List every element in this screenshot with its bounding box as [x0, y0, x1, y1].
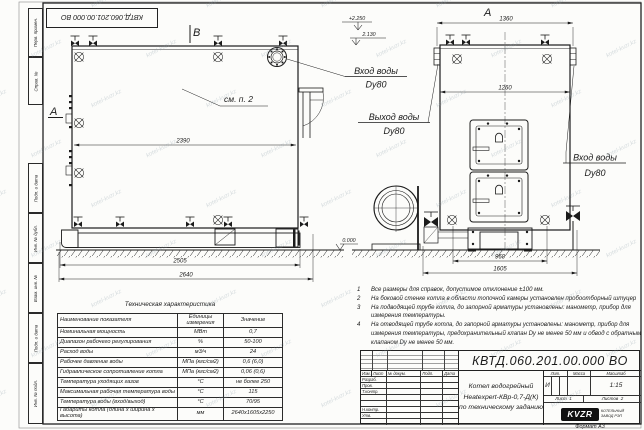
product-name-line: по техническому заданию — [459, 403, 543, 414]
role-label: Пров. — [361, 383, 387, 388]
signature-grid: Изм. Лист № докум. Подп. Дата Разраб. Пр… — [361, 371, 458, 425]
param-units: МПа (кгс/см2) — [178, 368, 224, 378]
col-ndokum: № докум. — [387, 371, 422, 376]
param-value: 0,06 (0,6) — [224, 368, 283, 378]
skid — [62, 229, 301, 248]
format-note: Формат А3 — [540, 424, 640, 430]
param-units: мм — [178, 408, 224, 421]
inlet-top-label: Вход воды — [354, 66, 398, 76]
margin-box-sprav: Справ. № — [28, 57, 43, 105]
tech-header-units: Единицы измерения — [178, 314, 224, 328]
table-row: Гидравлическое сопротивление котлаМПа (к… — [58, 368, 283, 378]
dim-skid-length: 2505 — [172, 259, 187, 265]
elevation-zero — [336, 244, 358, 250]
furnace-door — [470, 120, 528, 170]
param-name: Номинальная мощность — [58, 328, 178, 338]
tech-header-value: Значение — [224, 314, 283, 328]
margin-box-inv-podl: Инв. № подл. — [28, 363, 43, 424]
dim-body-length: 2390 — [175, 139, 190, 145]
lifting-lug-icon — [540, 215, 549, 224]
elevation-mid — [350, 38, 386, 45]
drain-valve-icon — [74, 217, 83, 227]
elevation-top — [342, 22, 372, 30]
param-units: МПа (кгс/см2) — [178, 358, 224, 368]
margin-label: Взам. инв. № — [33, 274, 38, 301]
see-note-label: см. п. 2 — [224, 94, 253, 104]
col-izm: Изм. — [361, 371, 372, 376]
right-valve — [566, 206, 580, 250]
sheet-value: 1 — [569, 396, 572, 401]
elevation-zero-value: 0.000 — [342, 238, 355, 244]
dim-overall-width: 1605 — [493, 267, 507, 273]
param-value: 2640х1605х2250 — [224, 408, 283, 421]
sheet-row: Лист 1 Листов 2 — [544, 396, 641, 403]
param-units: % — [178, 338, 224, 348]
signature-row — [361, 419, 458, 425]
elevation-top-value: +2.250 — [349, 16, 365, 22]
inlet-flange — [268, 48, 287, 67]
drain-valve-icon — [116, 217, 125, 227]
note-item: 4На отводящей трубе котла, до запорной а… — [357, 321, 642, 347]
param-name: Расход воды — [58, 348, 178, 358]
role-label: Разраб. — [361, 377, 387, 382]
lifting-lug-icon — [74, 52, 83, 61]
note-item: 3На подводящей трубе котла, до запорной … — [357, 304, 642, 322]
blower-fan — [372, 186, 468, 250]
sheets-cell: Листов 2 — [584, 396, 641, 402]
dim-front-body-width: 1260 — [498, 86, 512, 92]
air-valve-icon — [541, 35, 550, 45]
margin-label: Подп. и дата — [33, 324, 38, 352]
inlet-right-label: Вход воды — [573, 153, 617, 163]
section-marker-b: B — [193, 27, 200, 39]
margin-box-vzam-inv: Взам. инв. № — [28, 263, 43, 313]
role-label: Утв. — [361, 413, 387, 418]
margin-label: Инв. № подл. — [33, 380, 38, 407]
pipe-labels: Вход воды Dy80 Выход воды Dy80 Вход воды… — [287, 59, 626, 178]
dim-base-width: 960 — [495, 255, 506, 261]
product-name: Котел водогрейный Heatexpert-КВр-0,7-Д(К… — [458, 371, 544, 425]
col-data: Дата — [443, 371, 458, 376]
drain-valve-icon — [186, 217, 195, 227]
mass-header: Масса — [568, 371, 591, 376]
note-text: На отводящей трубе котла, до запорной ар… — [371, 321, 642, 347]
param-units: МВт — [178, 328, 224, 338]
lifting-lug-icon — [213, 215, 222, 224]
sheet-cell: Лист 1 — [544, 396, 584, 402]
col-podp: Подп. — [421, 371, 443, 376]
param-units: °С — [178, 398, 224, 408]
param-value: 0,6 (6,0) — [224, 358, 283, 368]
pedestal — [468, 228, 532, 252]
lifting-lug-icon — [542, 54, 551, 63]
rotated-doc-number-stamp: КВТД.060.201.00.000 ВО — [46, 8, 158, 28]
param-units: °С — [178, 378, 224, 388]
lit-header: Лит. — [544, 371, 568, 376]
air-valve-icon — [89, 36, 98, 46]
note-number: 1 — [357, 286, 371, 295]
doc-number: КВТД.060.201.00.000 ВО — [458, 351, 641, 371]
margin-box-inv-dubl: Инв. № дубл. — [28, 213, 43, 263]
note-number: 4 — [357, 321, 371, 347]
air-valve-icon — [71, 36, 80, 46]
sheet-label: Лист — [555, 396, 567, 401]
table-row: Температура уходящих газов°Сне более 250 — [58, 378, 283, 388]
note-item: 2На боковой стенке котла в области топоч… — [357, 295, 642, 304]
revision-grid — [361, 351, 458, 371]
scale-header: Масштаб — [591, 371, 641, 376]
mass-value — [568, 377, 591, 395]
lifting-lug-icon — [213, 52, 222, 61]
lit-mass-scale-values: И 1:15 — [544, 377, 641, 396]
tech-characteristics: Техническая характеристика Наименование … — [57, 301, 283, 421]
role-label — [361, 419, 387, 425]
logo-caption: КОТЕЛЬНЫЙ ЗАВОД РЭП — [601, 409, 624, 418]
outlet-label: Выход воды — [369, 112, 420, 122]
air-valve-icon — [279, 36, 288, 46]
note-item: 1Все размеры для справок, допустимое отк… — [357, 286, 642, 295]
role-label — [361, 395, 387, 400]
param-name: Диапазон рабочего регулирования — [58, 338, 178, 348]
margin-box-perv-primen: Перв. примен. — [28, 8, 43, 57]
param-value: 115 — [224, 388, 283, 398]
param-name: Габариты котла (длина х ширина х высота) — [58, 408, 178, 421]
param-name: Рабочее давление воды — [58, 358, 178, 368]
col-list: Лист — [372, 371, 387, 376]
drain-valve-icon — [224, 217, 233, 227]
note-number: 2 — [357, 295, 371, 304]
param-name: Температура уходящих газов — [58, 378, 178, 388]
dim-front-overall-width: 1360 — [499, 17, 513, 23]
view-marker-a-side: A — [49, 106, 57, 118]
inlet-right-dn: Dy80 — [584, 168, 605, 178]
elevation-mid-value: 2.130 — [361, 32, 375, 38]
note-text: На подводящей трубе котла, до запорной а… — [371, 304, 642, 322]
margin-label: Инв. № дубл. — [33, 224, 38, 251]
table-row: Расход водым3/ч24 — [58, 348, 283, 358]
role-label — [361, 401, 387, 406]
outlet-pipe — [299, 88, 324, 138]
tech-table: Наименование показателя Единицы измерени… — [57, 313, 283, 421]
margin-box-podp-data-1: Подп. и дата — [28, 163, 43, 213]
logo-row: KVZR КОТЕЛЬНЫЙ ЗАВОД РЭП — [544, 403, 641, 425]
outlet-dn: Dy80 — [383, 126, 404, 136]
param-name: Максимальная рабочая температура воды — [58, 388, 178, 398]
margin-label: Подп. и дата — [33, 174, 38, 202]
lifting-lug-icon — [74, 118, 83, 127]
margin-label: Справ. № — [33, 71, 38, 91]
air-valve-icon — [446, 35, 455, 45]
title-block-right: Лит. Масса Масштаб И 1:15 Лист 1 Листов … — [544, 371, 641, 425]
tech-table-header-row: Наименование показателя Единицы измерени… — [58, 314, 283, 328]
param-value: не более 250 — [224, 378, 283, 388]
lifting-lug-icon — [447, 215, 456, 224]
table-row: Номинальная мощностьМВт0,7 — [58, 328, 283, 338]
air-valve-icon — [462, 35, 471, 45]
role-label: Н.контр. — [361, 407, 387, 412]
front-view: A 1360 1260 960 1605 — [352, 7, 600, 276]
param-value: 70/95 — [224, 398, 283, 408]
param-value: 0,7 — [224, 328, 283, 338]
table-row: Температура воды (вход/выход)°С70/95 — [58, 398, 283, 408]
note-text: На боковой стенке котла в области топочн… — [371, 295, 642, 304]
tech-table-title: Техническая характеристика — [57, 301, 283, 313]
param-value: 24 — [224, 348, 283, 358]
table-row: Габариты котла (длина х ширина х высота)… — [58, 408, 283, 421]
margin-box-podp-data-2: Подп. и дата — [28, 313, 43, 363]
air-valve-icon — [214, 36, 223, 46]
drawing-notes: 1Все размеры для справок, допустимое отк… — [357, 286, 642, 348]
param-units: °С — [178, 388, 224, 398]
dim-overall-length: 2640 — [178, 273, 193, 279]
table-row: Рабочее давление водыМПа (кгс/см2)0,6 (6… — [58, 358, 283, 368]
role-label: Т.контр. — [361, 389, 387, 394]
sheets-label: Листов — [602, 396, 618, 401]
param-name: Гидравлическое сопротивление котла — [58, 368, 178, 378]
product-name-line: Heatexpert-КВр-0,7-Д(К) — [463, 393, 538, 404]
note-number: 3 — [357, 304, 371, 322]
view-marker-a-front: A — [483, 7, 491, 19]
inlet-top-dn: Dy80 — [365, 80, 386, 90]
sheets-value: 2 — [621, 396, 624, 401]
ash-door — [470, 172, 528, 222]
margin-label: Перв. примен. — [33, 18, 38, 47]
product-name-line: Котел водогрейный — [469, 382, 534, 393]
param-value: 50-100 — [224, 338, 283, 348]
lifting-lug-icon — [74, 168, 83, 177]
scale-value: 1:15 — [591, 377, 641, 395]
side-view: 2390 2505 2640 0.000 — [56, 36, 358, 282]
table-row: Диапазон рабочего регулирования%50-100 — [58, 338, 283, 348]
drawing-sheet: 2390 2505 2640 0.000 B A см. п. 2 +2.250 — [0, 0, 644, 430]
lit-value: И — [544, 377, 552, 395]
tech-header-name: Наименование показателя — [58, 314, 178, 328]
kvzr-logo: KVZR — [561, 408, 599, 421]
view-markers: B A см. п. 2 +2.250 2.130 — [48, 16, 386, 118]
param-name: Температура воды (вход/выход) — [58, 398, 178, 408]
param-units: м3/ч — [178, 348, 224, 358]
note-text: Все размеры для справок, допустимое откл… — [371, 286, 642, 295]
logo-caption-line: ЗАВОД РЭП — [601, 414, 624, 419]
drain-valve-icon — [300, 217, 309, 227]
lifting-lug-icon — [452, 54, 461, 63]
title-block: КВТД.060.201.00.000 ВО Изм. Лист № докум… — [360, 350, 640, 424]
table-row: Максимальная рабочая температура воды°С1… — [58, 388, 283, 398]
